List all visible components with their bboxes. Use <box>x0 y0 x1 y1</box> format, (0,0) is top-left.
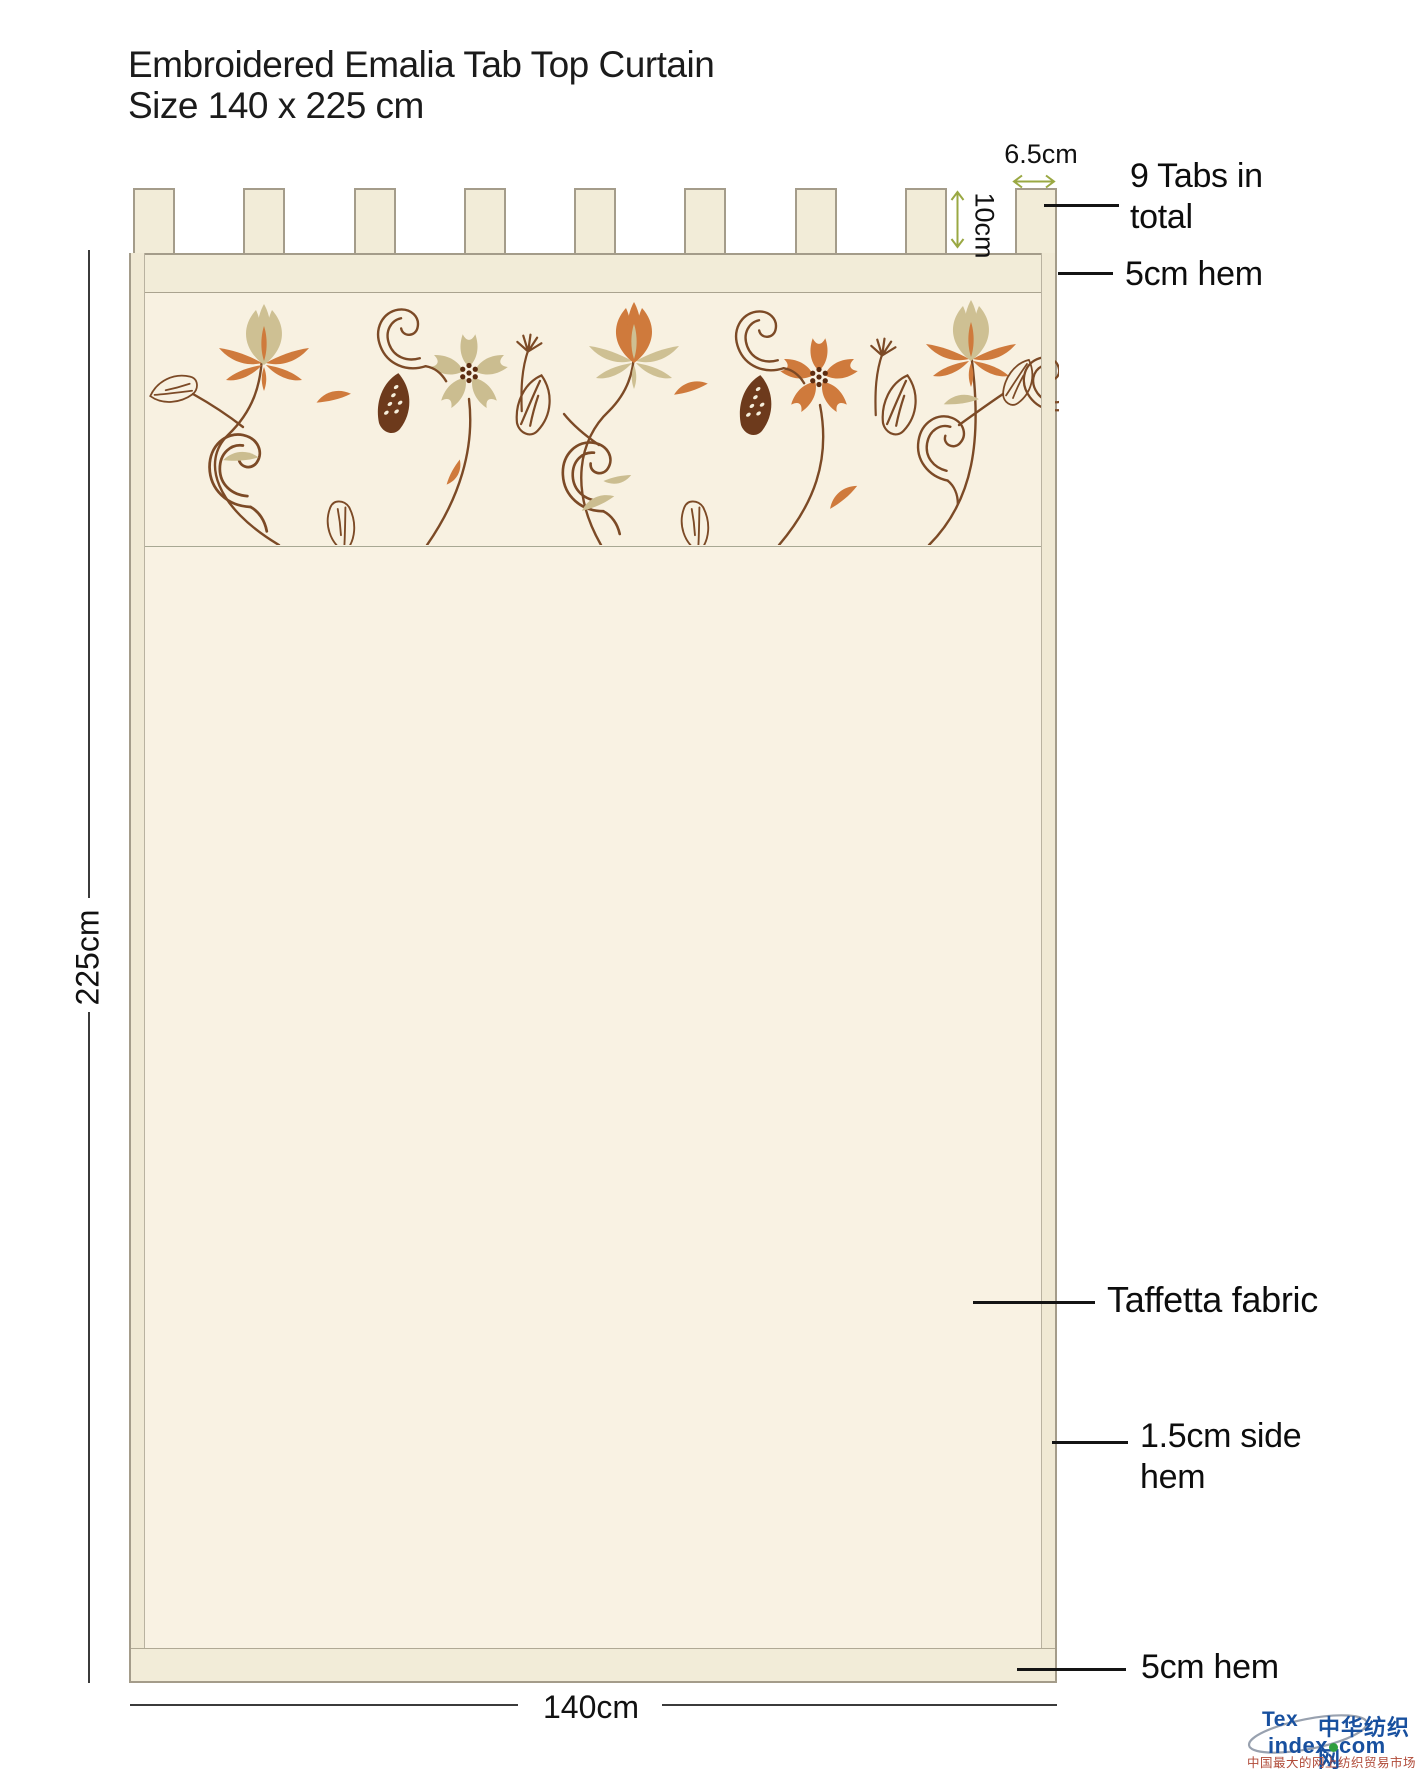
logo-tex-text: Tex <box>1262 1708 1298 1732</box>
fabric-callout-label: Taffetta fabric <box>1107 1279 1318 1320</box>
embroidery-band <box>131 293 1055 547</box>
curtain-tab <box>795 188 837 254</box>
curtain-tab <box>354 188 396 254</box>
tab-width-arrow <box>1010 173 1058 190</box>
width-dimension-label: 140cm <box>543 1689 639 1726</box>
side-hem-callout-line <box>1052 1441 1128 1444</box>
curtain-diagram <box>129 253 1057 1683</box>
curtain-tab <box>243 188 285 254</box>
height-dimension-line-bottom <box>88 1012 90 1683</box>
top-hem-callout-label: 5cm hem <box>1125 254 1263 295</box>
side-hem-callout-label: 1.5cm side hem <box>1140 1416 1325 1498</box>
embroidery-band-graphic <box>131 293 1059 545</box>
page-title-line2: Size 140 x 225 cm <box>128 85 714 126</box>
top-hem-band <box>131 253 1055 293</box>
left-side-hem <box>131 253 145 1650</box>
tabs-callout-line <box>1044 204 1119 207</box>
fabric-callout-line <box>973 1301 1095 1304</box>
curtain-tab <box>905 188 947 254</box>
width-dimension-line-right <box>662 1704 1057 1706</box>
page-title-line1: Embroidered Emalia Tab Top Curtain <box>128 44 714 85</box>
height-dimension-line-top <box>88 250 90 898</box>
bottom-hem-callout-label: 5cm hem <box>1141 1647 1279 1688</box>
tab-width-label: 6.5cm <box>1004 139 1078 170</box>
tab-height-arrow <box>949 188 966 251</box>
top-hem-callout-line <box>1058 272 1113 275</box>
curtain-tab <box>133 188 175 254</box>
width-dimension-line-left <box>130 1704 518 1706</box>
bottom-hem-band <box>131 1648 1055 1681</box>
diagram-page: { "title": { "line1": "Embroidered Emali… <box>0 0 1422 1772</box>
tabs-callout-label: 9 Tabs in total <box>1130 156 1280 238</box>
bottom-hem-callout-line <box>1017 1668 1126 1671</box>
logo-green-dot-icon <box>1329 1743 1338 1752</box>
curtain-tab <box>574 188 616 254</box>
logo-tagline: 中国最大的网上纺织贸易市场 <box>1247 1752 1416 1771</box>
curtain-tab <box>464 188 506 254</box>
curtain-tab <box>1015 188 1057 254</box>
height-dimension-label: 225cm <box>70 908 107 1008</box>
page-title: Embroidered Emalia Tab Top Curtain Size … <box>128 44 714 126</box>
curtain-tab <box>684 188 726 254</box>
tab-height-label: 10cm <box>969 176 1000 276</box>
